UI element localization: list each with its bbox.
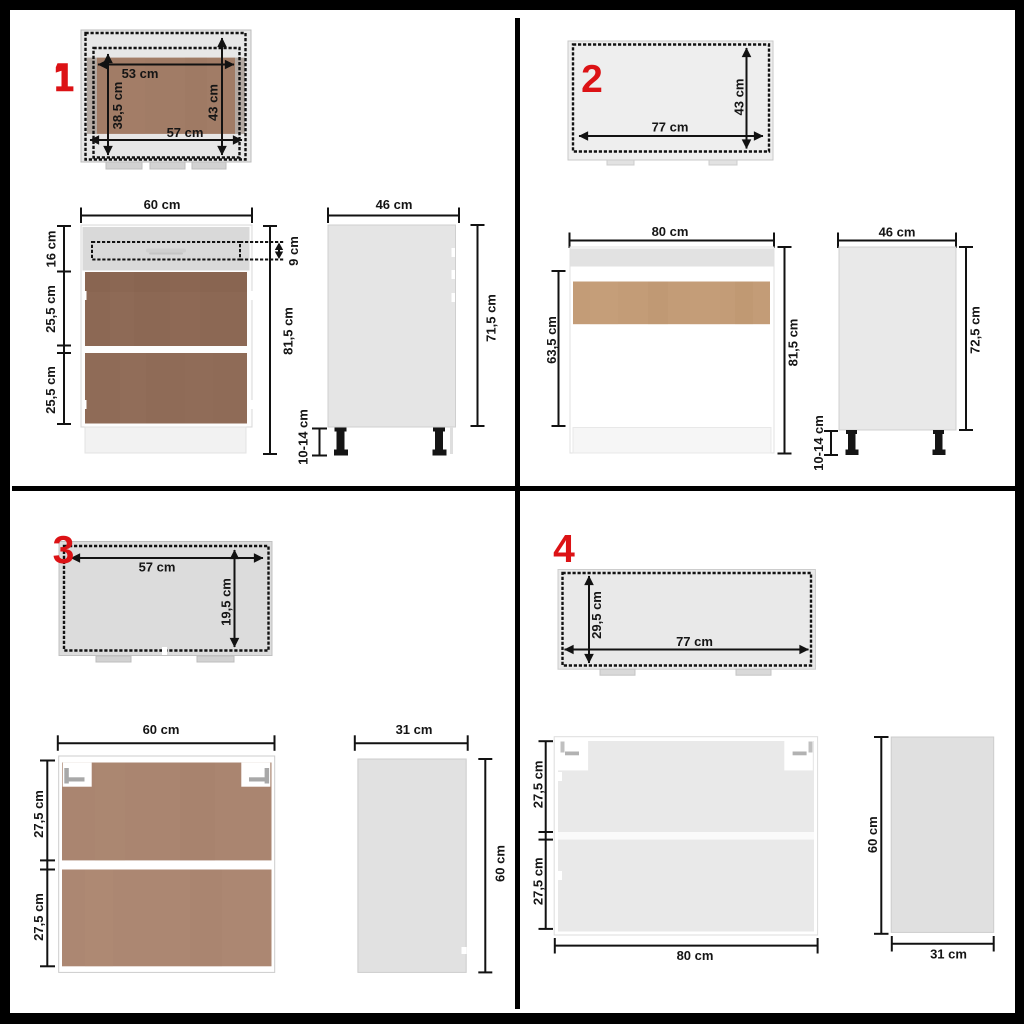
svg-text:60 cm: 60 cm — [144, 197, 181, 212]
svg-text:31 cm: 31 cm — [396, 722, 433, 737]
svg-text:77 cm: 77 cm — [676, 634, 713, 649]
svg-text:63,5 cm: 63,5 cm — [544, 316, 559, 364]
svg-text:43 cm: 43 cm — [732, 79, 747, 116]
svg-text:71,5 cm: 71,5 cm — [484, 294, 499, 342]
svg-text:60 cm: 60 cm — [143, 722, 180, 737]
svg-text:60 cm: 60 cm — [493, 845, 508, 882]
svg-text:27,5 cm: 27,5 cm — [531, 761, 546, 809]
svg-text:2: 2 — [581, 58, 603, 101]
svg-text:27,5 cm: 27,5 cm — [31, 790, 46, 838]
svg-text:4: 4 — [553, 528, 575, 571]
svg-text:43 cm: 43 cm — [206, 84, 221, 121]
svg-text:9 cm: 9 cm — [286, 236, 301, 266]
svg-text:38,5 cm: 38,5 cm — [110, 82, 125, 130]
svg-text:53 cm: 53 cm — [122, 66, 159, 81]
svg-text:25,5 cm: 25,5 cm — [43, 285, 58, 333]
svg-text:3: 3 — [53, 529, 75, 572]
svg-text:80 cm: 80 cm — [677, 948, 714, 963]
svg-text:60 cm: 60 cm — [865, 816, 880, 853]
svg-text:80 cm: 80 cm — [652, 224, 689, 239]
svg-text:25,5 cm: 25,5 cm — [43, 366, 58, 414]
svg-text:27,5 cm: 27,5 cm — [31, 893, 46, 941]
svg-text:81,5 cm: 81,5 cm — [281, 307, 296, 355]
svg-text:57 cm: 57 cm — [167, 125, 204, 140]
svg-text:10-14 cm: 10-14 cm — [811, 415, 826, 471]
svg-text:46 cm: 46 cm — [376, 197, 413, 212]
svg-text:77 cm: 77 cm — [652, 120, 689, 135]
svg-text:27,5 cm: 27,5 cm — [531, 857, 546, 905]
svg-text:10-14 cm: 10-14 cm — [296, 409, 311, 465]
svg-text:81,5 cm: 81,5 cm — [786, 319, 801, 367]
svg-text:46 cm: 46 cm — [879, 225, 916, 240]
svg-text:72,5 cm: 72,5 cm — [968, 306, 983, 354]
svg-text:31 cm: 31 cm — [930, 947, 967, 962]
svg-text:19,5 cm: 19,5 cm — [219, 578, 234, 626]
svg-text:29,5 cm: 29,5 cm — [589, 591, 604, 639]
svg-text:16 cm: 16 cm — [44, 231, 59, 268]
svg-text:57 cm: 57 cm — [139, 560, 176, 575]
